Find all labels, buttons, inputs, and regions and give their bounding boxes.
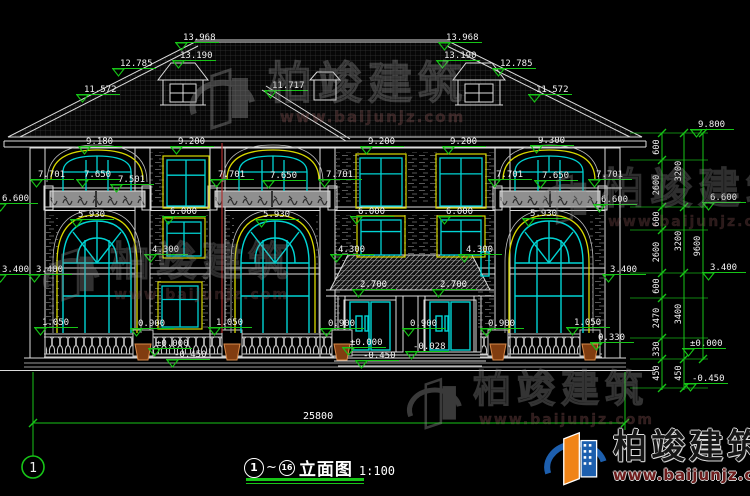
level-flag-text: 7.701 bbox=[326, 170, 353, 180]
level-flag: 7.650 bbox=[534, 171, 578, 188]
level-flag-text: 0.900 bbox=[328, 319, 355, 329]
planter bbox=[224, 344, 240, 360]
level-flag-text: 2.700 bbox=[440, 280, 467, 290]
vertical-dim-text: 2600 bbox=[652, 242, 662, 262]
arched-window-upper bbox=[499, 145, 599, 191]
level-flag-text: 11.572 bbox=[84, 85, 117, 95]
level-flag-triangle bbox=[703, 203, 714, 210]
level-flag-triangle bbox=[263, 181, 274, 188]
level-flag-text: ±0.000 bbox=[156, 339, 189, 349]
vertical-dim-text: 3400 bbox=[674, 304, 684, 324]
level-flag-text: 6.600 bbox=[601, 195, 628, 205]
vertical-dim-text: 330 bbox=[652, 341, 662, 356]
vertical-dim-text: 450 bbox=[674, 365, 684, 380]
rect-window bbox=[436, 154, 486, 208]
title-underline-thin bbox=[246, 483, 364, 484]
level-flag-text: 7.701 bbox=[218, 170, 245, 180]
level-flag-text: 11.572 bbox=[536, 85, 569, 95]
level-flag: 5.930 bbox=[70, 210, 114, 227]
level-flag-text: 0.900 bbox=[488, 319, 515, 329]
svg-text:1: 1 bbox=[29, 461, 37, 476]
cad-elevation-canvas: 13.96813.19012.78511.57211.71713.96813.1… bbox=[0, 0, 750, 496]
level-flag-text: 6.000 bbox=[446, 207, 473, 217]
arched-window-large bbox=[505, 210, 593, 333]
level-flag-text: 7.701 bbox=[496, 170, 523, 180]
level-flag-text: 7.650 bbox=[542, 171, 569, 181]
level-flag-text: 4.300 bbox=[152, 245, 179, 255]
level-flag-text: 4.300 bbox=[338, 245, 365, 255]
level-flag: ±0.000 bbox=[682, 339, 726, 356]
level-flag-text: 5.930 bbox=[263, 210, 290, 220]
arched-window-large bbox=[231, 210, 319, 333]
level-flag-text: -0.450 bbox=[692, 374, 725, 384]
level-flag-text: 0.900 bbox=[410, 319, 437, 329]
vertical-dim-text: 3200 bbox=[674, 161, 684, 181]
level-flag-text: 0.900 bbox=[138, 319, 165, 329]
vertical-dim-text: 9600 bbox=[693, 236, 703, 256]
vertical-dim-text: 600 bbox=[652, 278, 662, 293]
level-flag-text: 7.701 bbox=[596, 170, 623, 180]
rect-window bbox=[356, 154, 406, 208]
drawing-number-bubble: 1 bbox=[244, 458, 264, 478]
level-flag-text: 3.400 bbox=[2, 265, 29, 275]
level-flag: 6.600 bbox=[702, 193, 746, 210]
level-flag-text: 0.330 bbox=[598, 333, 625, 343]
total-width-dim: 25800 bbox=[303, 411, 333, 422]
level-flag-triangle bbox=[113, 69, 124, 76]
level-flag-text: 11.717 bbox=[272, 81, 305, 91]
level-flag-text: 12.785 bbox=[120, 59, 153, 69]
level-flag-text: 1.050 bbox=[216, 318, 243, 328]
grid-bubble-1: 1 bbox=[22, 456, 44, 478]
level-flag: -0.028 bbox=[405, 342, 449, 359]
brand-logo: 柏竣建筑 www.baijunjz.com bbox=[543, 424, 750, 490]
title-underline-thick bbox=[246, 478, 364, 481]
level-flag: 5.930 bbox=[522, 209, 566, 226]
brand-logo-icon bbox=[543, 424, 607, 490]
level-flag: 9.800 bbox=[690, 120, 734, 137]
drawing-title: 1 ~ 16 立面图 1:100 bbox=[244, 455, 395, 480]
level-flag-text: 13.190 bbox=[180, 51, 213, 61]
level-flag: 9.200 bbox=[442, 137, 486, 154]
level-flag-text: 6.600 bbox=[710, 193, 737, 203]
level-flag-text: -0.450 bbox=[174, 350, 207, 360]
brand-name-text: 柏竣建筑 bbox=[613, 430, 750, 466]
level-flag-text: 12.785 bbox=[500, 59, 533, 69]
level-flag-text: 7.501 bbox=[118, 175, 145, 185]
vertical-dim-text: 3200 bbox=[674, 231, 684, 251]
level-flag-triangle bbox=[535, 181, 546, 188]
level-flag-text: 3.400 bbox=[710, 263, 737, 273]
level-flag-text: 3.400 bbox=[610, 265, 637, 275]
vertical-dim-text: 2470 bbox=[652, 308, 662, 328]
terrace-balustrade bbox=[44, 334, 602, 357]
range-tilde: ~ bbox=[266, 460, 277, 475]
arched-window-upper bbox=[223, 145, 323, 191]
level-flag: 9.200 bbox=[170, 137, 214, 154]
drawing-number-bubble-2: 16 bbox=[279, 460, 295, 476]
level-flag-text: 9.200 bbox=[178, 137, 205, 147]
level-flag-text: 1.050 bbox=[574, 318, 601, 328]
level-flag-text: 9.200 bbox=[368, 137, 395, 147]
vertical-dim-text: 2600 bbox=[652, 175, 662, 195]
level-flag-text: 2.700 bbox=[360, 280, 387, 290]
level-flag-triangle bbox=[703, 273, 714, 280]
right-dim-chains bbox=[630, 129, 708, 392]
planter bbox=[334, 344, 350, 360]
level-flag-text: 9.180 bbox=[86, 137, 113, 147]
arched-window-large bbox=[53, 210, 141, 333]
level-flag-triangle bbox=[403, 329, 414, 336]
level-flag-text: 9.200 bbox=[450, 137, 477, 147]
rect-window bbox=[163, 156, 209, 208]
drawing-scale: 1:100 bbox=[359, 464, 395, 478]
level-flag-text: 1.050 bbox=[42, 318, 69, 328]
vertical-dim-text: 600 bbox=[652, 211, 662, 226]
planter bbox=[490, 344, 506, 360]
vertical-dim-text: 450 bbox=[652, 365, 662, 380]
elevation-drawing: 13.96813.19012.78511.57211.71713.96813.1… bbox=[0, 0, 750, 496]
level-flag-text: 4.300 bbox=[466, 245, 493, 255]
level-flag: -0.450 bbox=[684, 374, 728, 391]
level-flag-text: 3.400 bbox=[36, 265, 63, 275]
level-flag: 3.400 bbox=[702, 263, 746, 280]
level-flag-triangle bbox=[0, 204, 6, 211]
level-flag-text: -0.028 bbox=[413, 342, 446, 352]
level-flag-text: 5.930 bbox=[78, 210, 105, 220]
level-flag-text: 7.701 bbox=[38, 170, 65, 180]
level-flag-text: ±0.000 bbox=[350, 338, 383, 348]
drawing-title-text: 立面图 bbox=[299, 455, 353, 480]
level-flag-text: 5.930 bbox=[530, 209, 557, 219]
brand-url-text: www.baijunjz.com bbox=[613, 466, 750, 484]
level-flag-text: 7.650 bbox=[270, 171, 297, 181]
planter bbox=[582, 344, 598, 360]
level-flag-text: 6.000 bbox=[358, 207, 385, 217]
level-flag-text: 6.600 bbox=[2, 194, 29, 204]
level-flag-text: 7.650 bbox=[84, 170, 111, 180]
level-flag-triangle bbox=[0, 275, 6, 282]
level-flag: 9.200 bbox=[360, 137, 404, 154]
planter bbox=[135, 344, 151, 360]
level-flag: -0.450 bbox=[355, 351, 399, 368]
level-flag-text: 9.300 bbox=[538, 136, 565, 146]
level-flag-text: 13.968 bbox=[183, 33, 216, 43]
level-flag-text: 13.968 bbox=[446, 33, 479, 43]
level-flag-text: 6.000 bbox=[170, 207, 197, 217]
level-flag-text: 9.800 bbox=[698, 120, 725, 130]
level-flag-text: -0.450 bbox=[363, 351, 396, 361]
level-flag-text: ±0.000 bbox=[690, 339, 723, 349]
vertical-dim-text: 600 bbox=[652, 139, 662, 154]
level-flag-triangle bbox=[683, 349, 694, 356]
level-flag-text: 13.190 bbox=[444, 51, 477, 61]
